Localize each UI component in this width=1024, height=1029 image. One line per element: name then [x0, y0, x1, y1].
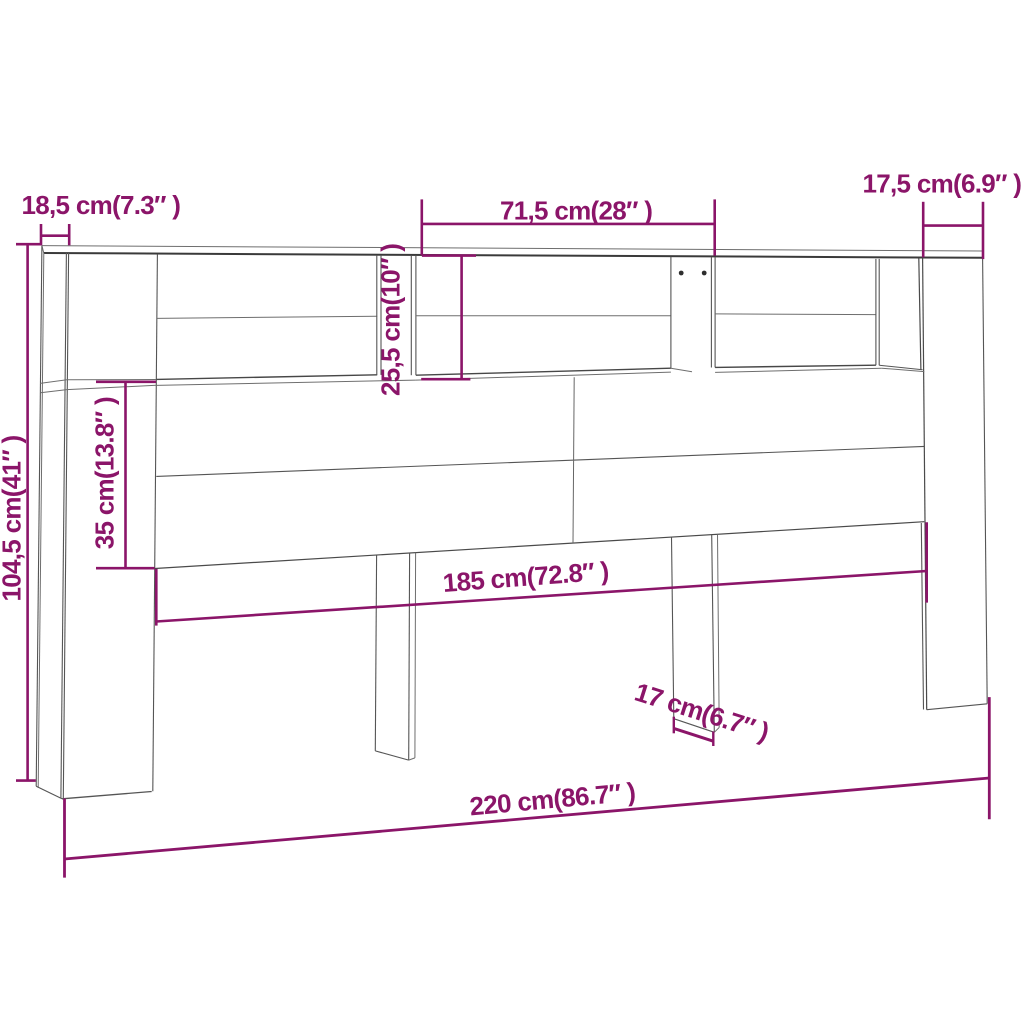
svg-text:25,5 cm(10″ ): 25,5 cm(10″ ): [376, 244, 406, 396]
svg-text:71,5 cm(28″ ): 71,5 cm(28″ ): [500, 196, 652, 226]
svg-text:185 cm(72.8″ ): 185 cm(72.8″ ): [442, 556, 610, 598]
svg-text:104,5 cm(41″ ): 104,5 cm(41″ ): [0, 435, 27, 601]
svg-text:220 cm(86.7″ ): 220 cm(86.7″ ): [468, 777, 636, 822]
svg-text:18,5 cm(7.3″ ): 18,5 cm(7.3″ ): [22, 190, 181, 220]
svg-text:35 cm(13.8″ ): 35 cm(13.8″ ): [90, 397, 120, 549]
svg-text:17,5 cm(6.9″ ): 17,5 cm(6.9″ ): [863, 169, 1022, 199]
